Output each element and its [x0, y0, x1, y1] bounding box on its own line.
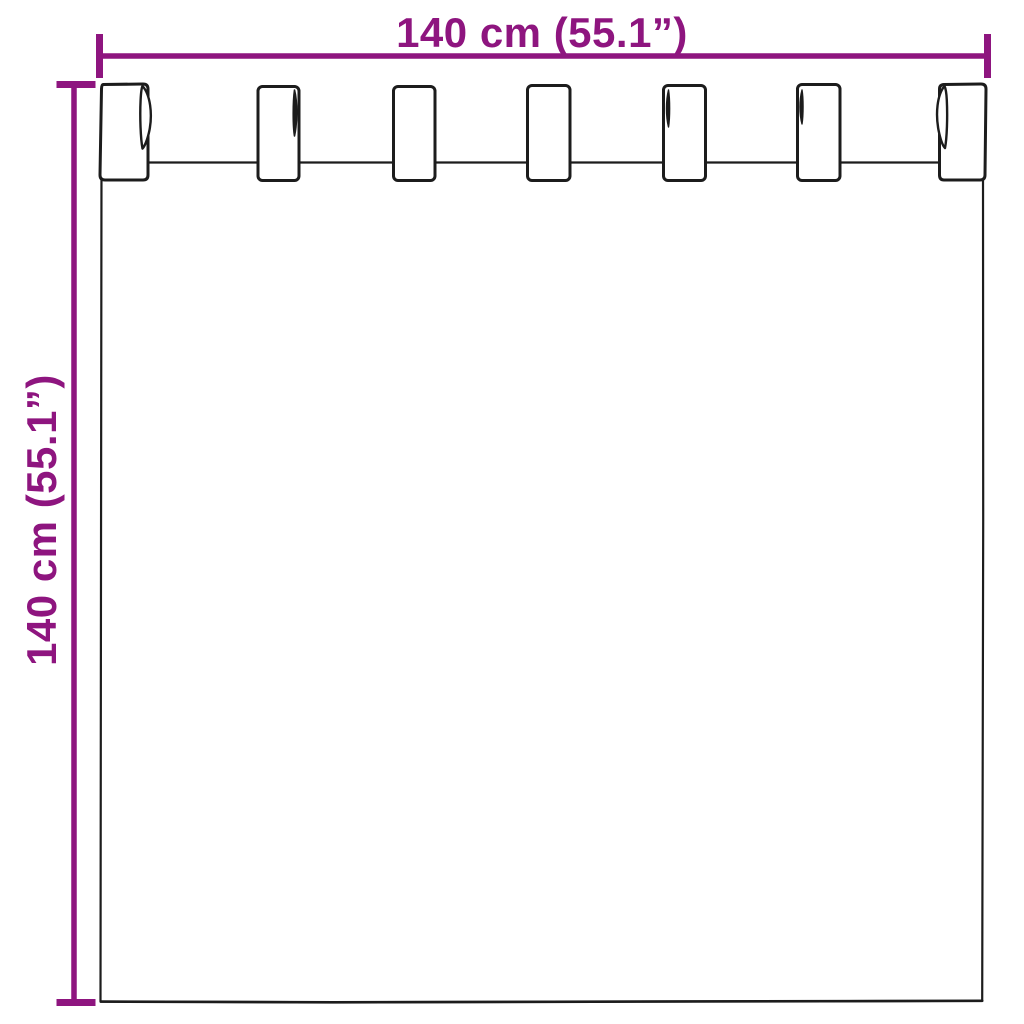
curtain-tab-fold	[666, 90, 669, 127]
curtain-dimension-diagram: 140 cm (55.1”) 140 cm (55.1”)	[0, 0, 1024, 1024]
curtain-tab	[394, 87, 436, 181]
curtain-tab-fold	[293, 90, 297, 136]
height-dimension-label: 140 cm (55.1”)	[18, 374, 65, 666]
curtain-drawing	[100, 84, 986, 1002]
curtain-tab-fold	[800, 90, 803, 124]
width-dimension-label: 140 cm (55.1”)	[396, 9, 688, 56]
curtain-tab	[798, 85, 841, 181]
curtain-hem-line	[101, 1001, 982, 1003]
product-dimension-diagram-page: 140 cm (55.1”) 140 cm (55.1”)	[0, 0, 1024, 1024]
curtain-tab	[528, 86, 571, 181]
curtain-panel	[101, 163, 984, 1003]
